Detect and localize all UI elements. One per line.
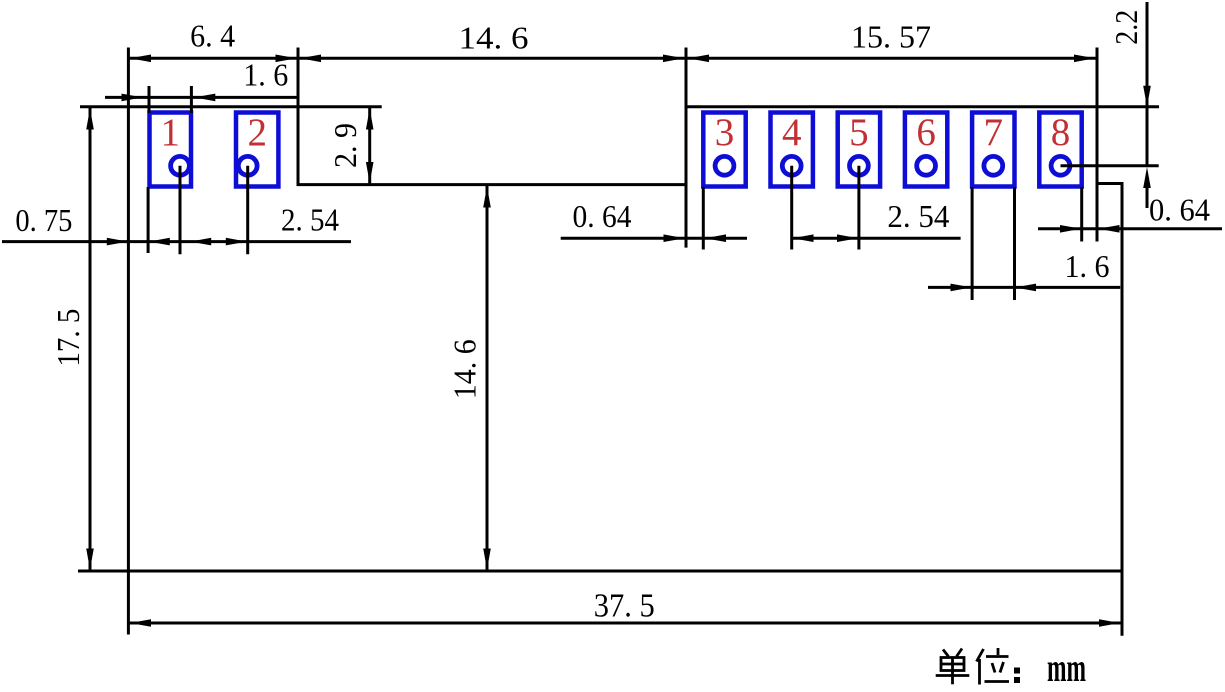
svg-text:8: 8 (1051, 111, 1071, 154)
svg-text:14. 6: 14. 6 (459, 20, 529, 56)
svg-text:0. 64: 0. 64 (1149, 192, 1210, 228)
svg-text:37. 5: 37. 5 (594, 588, 655, 625)
svg-text:2. 9: 2. 9 (327, 123, 363, 168)
svg-text:4: 4 (782, 111, 802, 154)
svg-text:6: 6 (916, 111, 936, 154)
svg-text:2. 54: 2. 54 (281, 202, 339, 238)
svg-text:5: 5 (849, 111, 869, 154)
svg-text:1. 6: 1. 6 (243, 57, 288, 93)
svg-text:1: 1 (161, 111, 181, 154)
svg-text:2: 2 (247, 111, 267, 154)
svg-text:3: 3 (715, 111, 735, 154)
svg-text:14. 6: 14. 6 (447, 339, 483, 399)
svg-text:2.2: 2.2 (1108, 10, 1144, 45)
svg-text:0. 75: 0. 75 (15, 202, 72, 238)
svg-text:7: 7 (984, 111, 1004, 154)
svg-text:mm: mm (1047, 645, 1086, 690)
svg-text:0. 64: 0. 64 (573, 198, 632, 234)
svg-text:15. 57: 15. 57 (851, 19, 931, 55)
svg-text:1. 6: 1. 6 (1065, 248, 1110, 284)
svg-text:2. 54: 2. 54 (887, 198, 949, 234)
svg-text:17. 5: 17. 5 (50, 309, 86, 367)
svg-text:6. 4: 6. 4 (190, 18, 235, 54)
